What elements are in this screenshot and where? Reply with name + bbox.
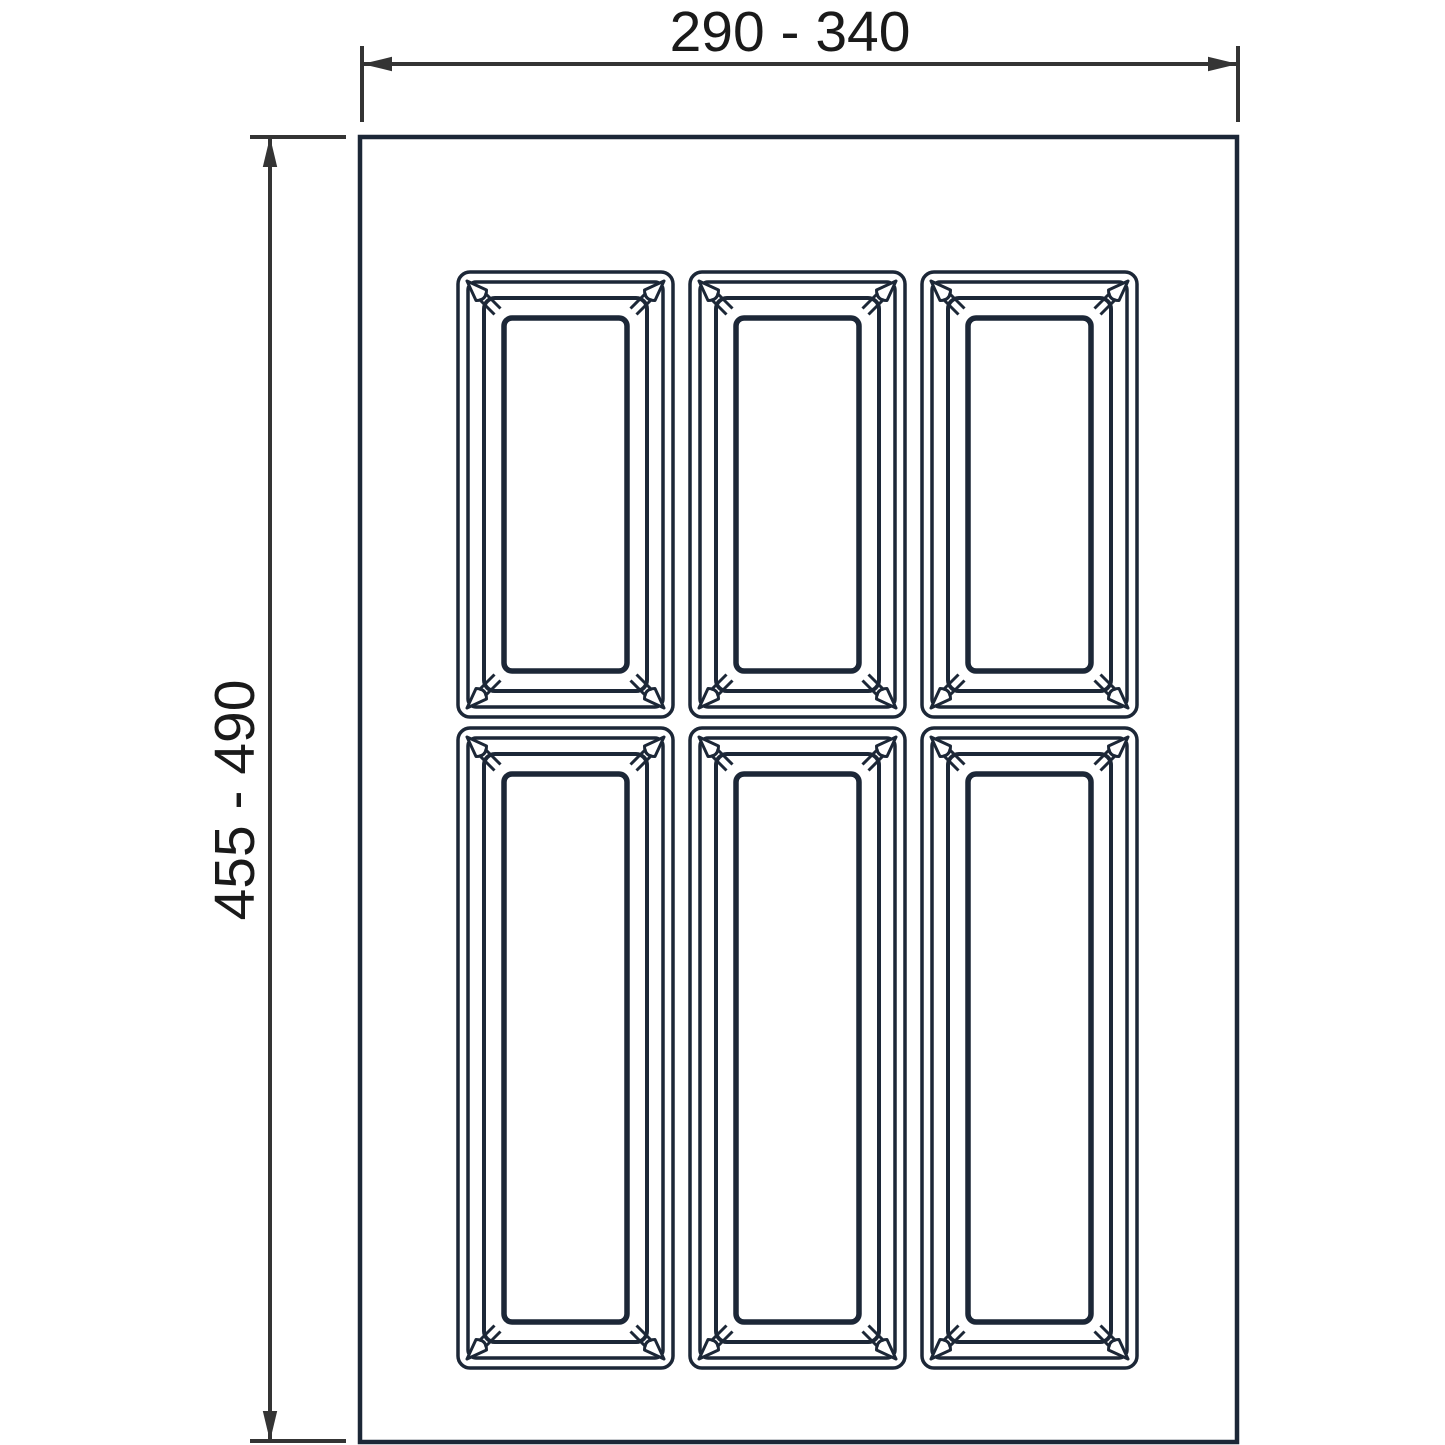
width-arrow-left-icon [362, 57, 392, 71]
height-arrow-down-icon [263, 1411, 277, 1441]
height-dimension-label: 455 - 490 [203, 680, 267, 921]
height-arrow-up-icon [263, 137, 277, 167]
tray-outline [360, 137, 1237, 1442]
width-dimension: 290 - 340 [362, 0, 1238, 122]
width-dimension-label: 290 - 340 [670, 0, 911, 64]
height-dimension: 455 - 490 [203, 137, 346, 1441]
width-arrow-right-icon [1208, 57, 1238, 71]
cutlery-tray-diagram: 290 - 340 455 - 490 [0, 0, 1445, 1445]
drawing-canvas: 290 - 340 455 - 490 [0, 0, 1445, 1445]
